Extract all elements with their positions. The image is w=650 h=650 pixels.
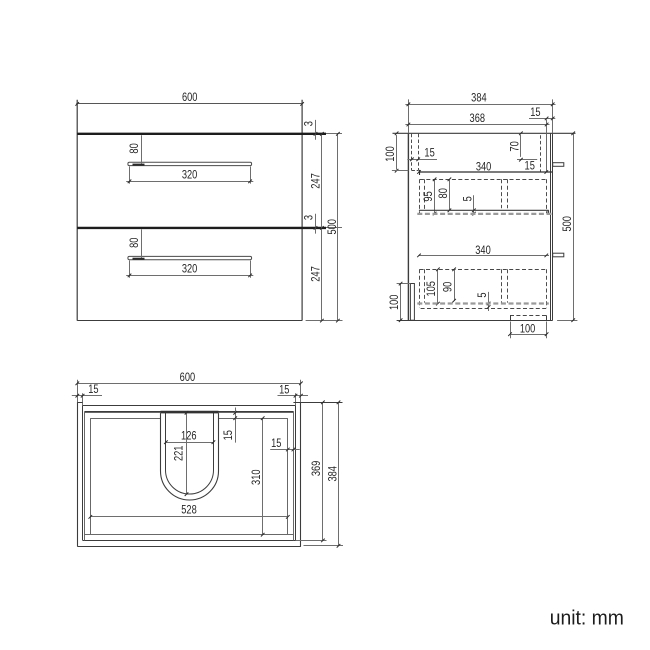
svg-text:5: 5	[461, 196, 474, 201]
svg-text:15: 15	[88, 383, 98, 396]
svg-text:247: 247	[310, 173, 323, 189]
svg-text:310: 310	[250, 469, 263, 485]
svg-text:3: 3	[302, 215, 315, 220]
svg-text:70: 70	[509, 141, 522, 151]
svg-text:15: 15	[424, 147, 434, 160]
svg-text:80: 80	[437, 188, 450, 198]
svg-text:369: 369	[310, 461, 323, 477]
svg-text:80: 80	[128, 237, 141, 247]
svg-text:368: 368	[470, 112, 486, 125]
svg-text:500: 500	[561, 216, 574, 232]
svg-text:340: 340	[475, 244, 491, 257]
svg-text:320: 320	[182, 169, 198, 182]
svg-text:320: 320	[182, 263, 198, 276]
svg-text:unit: mm: unit: mm	[550, 607, 624, 630]
svg-text:384: 384	[326, 466, 339, 482]
svg-text:3: 3	[303, 121, 316, 126]
svg-text:340: 340	[476, 160, 492, 173]
svg-text:15: 15	[525, 159, 535, 172]
svg-text:90: 90	[441, 282, 454, 292]
svg-text:100: 100	[520, 323, 536, 336]
svg-text:5: 5	[476, 292, 489, 297]
svg-text:600: 600	[180, 371, 196, 384]
svg-text:105: 105	[425, 281, 438, 297]
svg-text:100: 100	[384, 146, 397, 162]
svg-text:126: 126	[181, 430, 197, 443]
svg-text:100: 100	[388, 294, 401, 310]
svg-text:15: 15	[279, 383, 289, 396]
svg-text:15: 15	[530, 106, 540, 119]
svg-text:15: 15	[222, 430, 235, 440]
svg-text:221: 221	[172, 445, 185, 461]
svg-text:15: 15	[271, 437, 281, 450]
svg-text:384: 384	[471, 92, 487, 105]
svg-text:600: 600	[182, 91, 198, 104]
svg-text:95: 95	[422, 191, 435, 201]
svg-text:500: 500	[326, 219, 339, 235]
svg-text:528: 528	[181, 504, 197, 517]
svg-text:247: 247	[310, 266, 323, 282]
svg-text:80: 80	[128, 143, 141, 153]
